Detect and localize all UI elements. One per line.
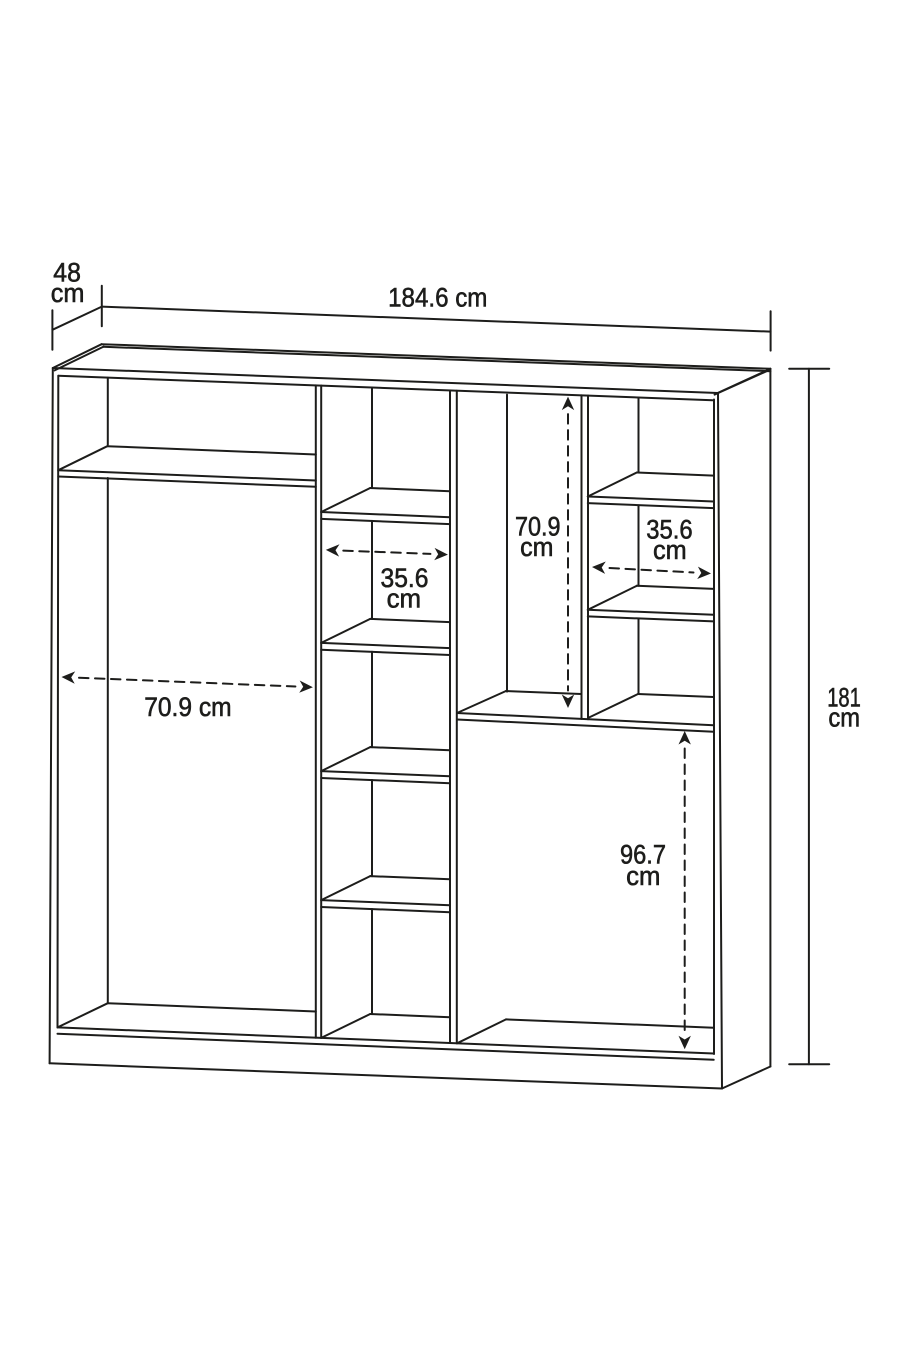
svg-text:cm: cm (653, 535, 687, 565)
svg-text:cm: cm (520, 532, 553, 562)
svg-text:70.9 cm: 70.9 cm (144, 692, 231, 722)
svg-text:cm: cm (387, 583, 422, 613)
svg-text:184.6 cm: 184.6 cm (388, 282, 487, 312)
svg-text:cm: cm (51, 278, 85, 308)
svg-text:cm: cm (626, 861, 660, 891)
svg-text:cm: cm (828, 702, 860, 732)
